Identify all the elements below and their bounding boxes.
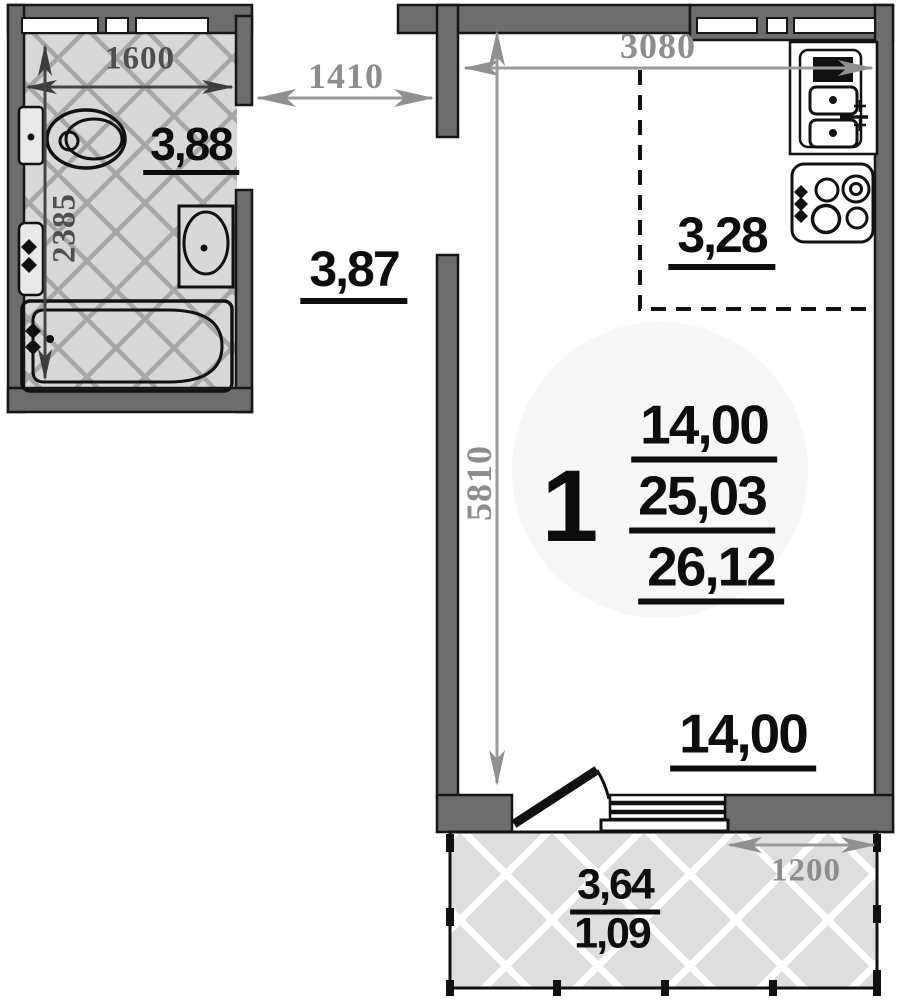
- balcony-window-icon: [601, 795, 728, 831]
- room-width-dim-label: 3080: [620, 28, 696, 64]
- kitchen-window-slot: [794, 18, 875, 33]
- balcony-area-label: 3,64: [570, 864, 660, 915]
- bathroom-window-slot: [106, 18, 128, 33]
- floor-plan: 1600 2385 1410 3080 5810 1200 3,88 3,87 …: [0, 0, 898, 1000]
- kitchen-area-label: 3,28: [668, 210, 775, 270]
- bathroom-depth-dim-label: 2385: [49, 193, 82, 263]
- unit-room-count-label: 1: [542, 455, 597, 557]
- washbasin-icon: [179, 206, 233, 287]
- bathroom-right-wall-lower: [236, 190, 252, 412]
- bathroom-window-slot: [22, 18, 98, 33]
- unit-living-area-label: 14,00: [631, 398, 777, 463]
- bathroom-right-wall-upper: [236, 16, 252, 105]
- unit-apartment-area-label: 25,03: [629, 469, 775, 534]
- room-left-wall: [437, 255, 458, 797]
- kitchen-window-slot: [767, 18, 787, 33]
- hallway-area-label: 3,87: [300, 244, 407, 304]
- kitchen-sink-icon: [790, 42, 877, 154]
- bathroom-area-label: 3,88: [143, 121, 239, 175]
- balcony-reduced-area-label: 1,09: [574, 913, 650, 956]
- living-room-area-label: 14,00: [670, 707, 816, 772]
- balcony-door-icon: [514, 770, 609, 824]
- room-depth-dim-label: 5810: [461, 445, 497, 521]
- room-left-wall-upper: [437, 5, 458, 137]
- kitchen-window-slot: [697, 18, 757, 33]
- kitchen-fixtures: [790, 42, 877, 242]
- bathroom-window-slot: [136, 18, 208, 33]
- room-bottom-wall-right: [725, 795, 893, 832]
- towel-radiator-icon: [19, 223, 43, 295]
- bathroom-width-dim-label: 1600: [105, 43, 175, 76]
- room-bottom-wall-left: [437, 795, 512, 832]
- dimension-room-depth: [489, 30, 505, 786]
- hallway-width-dim-label: 1410: [308, 58, 384, 94]
- stove-icon: [792, 164, 873, 242]
- unit-total-area-label: 26,12: [638, 540, 784, 605]
- balcony-width-dim-label: 1200: [771, 855, 841, 888]
